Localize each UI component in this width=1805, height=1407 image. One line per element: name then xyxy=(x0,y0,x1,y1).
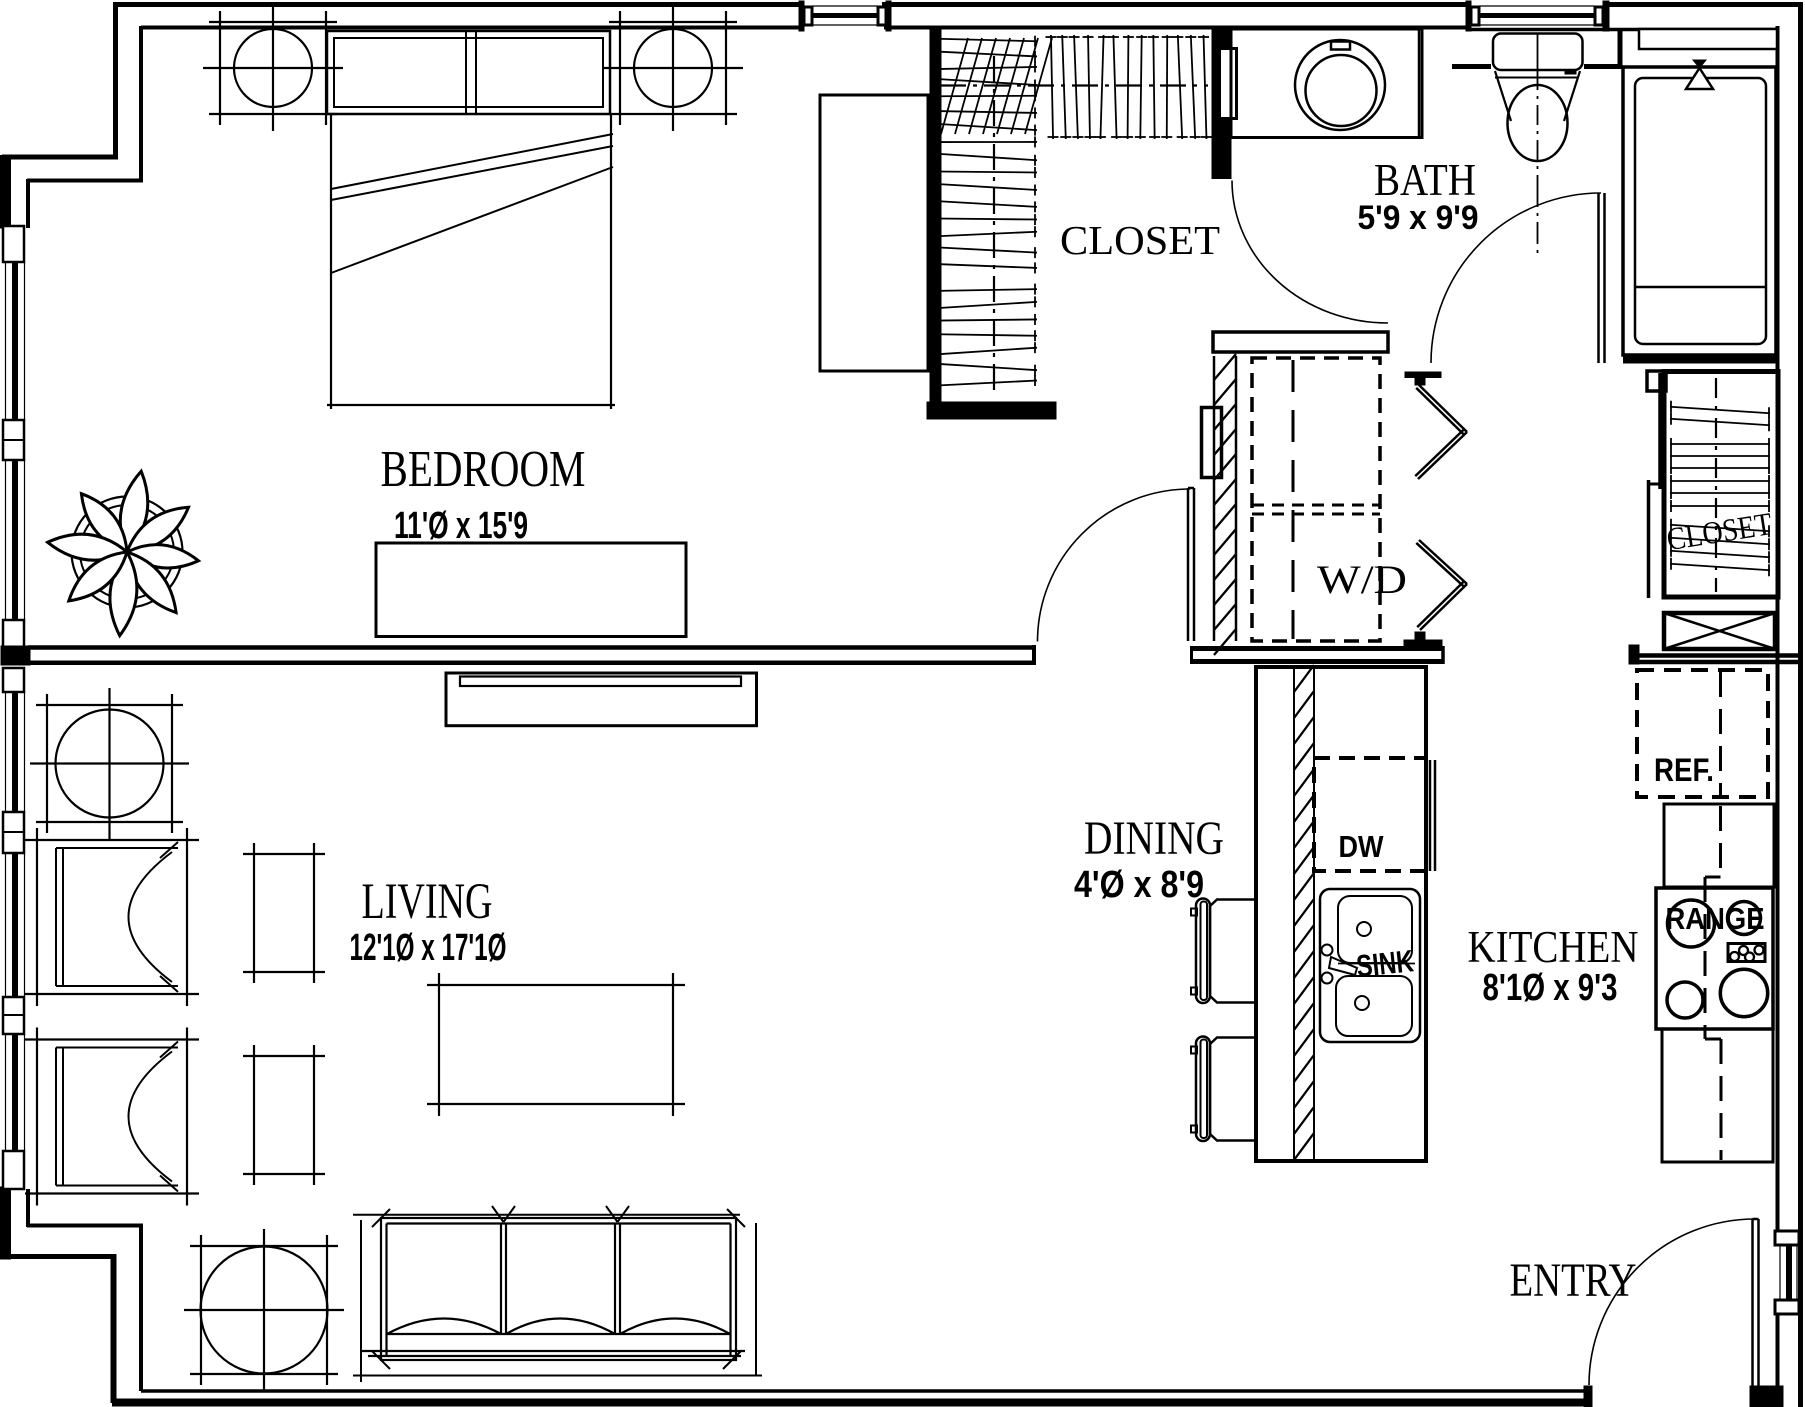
svg-text:LIVING: LIVING xyxy=(362,874,493,930)
svg-text:8'1Ø x 9'3: 8'1Ø x 9'3 xyxy=(1483,967,1618,1009)
svg-text:DINING: DINING xyxy=(1084,812,1224,865)
svg-text:DW: DW xyxy=(1339,829,1385,864)
svg-text:KITCHEN: KITCHEN xyxy=(1468,922,1639,972)
svg-text:12'1Ø x 17'1Ø: 12'1Ø x 17'1Ø xyxy=(350,927,507,969)
svg-text:4'Ø x 8'9: 4'Ø x 8'9 xyxy=(1074,864,1204,906)
svg-text:RANGE: RANGE xyxy=(1666,901,1765,936)
svg-text:REF.: REF. xyxy=(1654,752,1714,788)
svg-text:SINK: SINK xyxy=(1355,943,1416,984)
svg-text:5'9 x 9'9: 5'9 x 9'9 xyxy=(1358,199,1479,237)
svg-text:CLOSET: CLOSET xyxy=(1664,505,1775,557)
svg-text:BATH: BATH xyxy=(1374,155,1476,205)
svg-text:W/D: W/D xyxy=(1317,557,1407,602)
svg-text:11'Ø x 15'9: 11'Ø x 15'9 xyxy=(394,505,528,547)
svg-text:CLOSET: CLOSET xyxy=(1060,217,1220,263)
svg-text:ENTRY: ENTRY xyxy=(1510,1254,1637,1307)
svg-text:BEDROOM: BEDROOM xyxy=(381,441,586,498)
